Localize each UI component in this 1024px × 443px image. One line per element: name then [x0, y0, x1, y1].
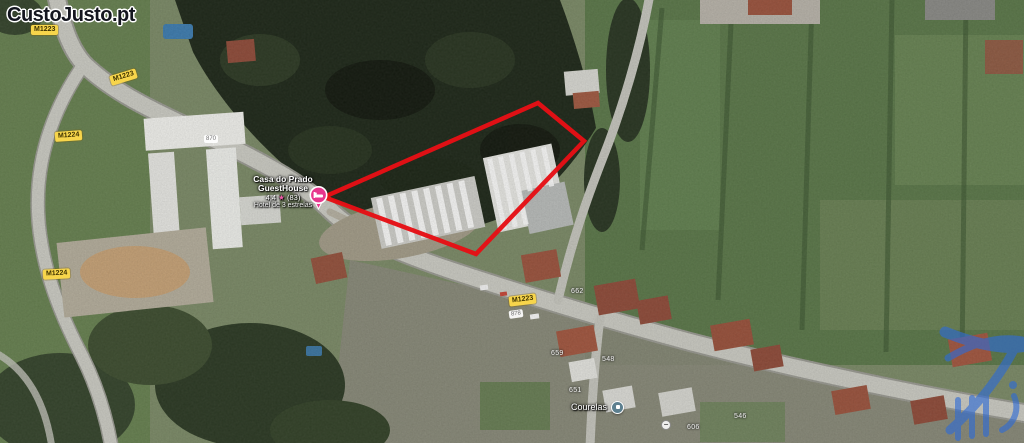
house-number: 548	[602, 356, 615, 363]
locality-pin-icon[interactable]	[611, 401, 624, 414]
photo-grain-light	[0, 0, 1024, 443]
house-number: 606	[687, 424, 700, 431]
custojusto-logo-watermark: CustoJusto.pt	[7, 4, 135, 27]
satellite-imagery	[0, 0, 1024, 443]
hotel-pin-icon[interactable]	[308, 185, 329, 212]
star-icon: ★	[278, 193, 285, 202]
road-restriction-icon: −	[661, 420, 671, 430]
rating-value: 4,4	[266, 193, 276, 202]
locality-label-courelas: Courelas	[571, 402, 607, 412]
house-number: 546	[734, 413, 747, 420]
road-badge-m1224-lower: M1224	[43, 268, 71, 279]
road-badge-m1224-upper: M1224	[55, 130, 83, 142]
house-number: 659	[551, 350, 564, 357]
house-number-shield-870: 870	[204, 135, 218, 143]
satellite-map-image[interactable]: CustoJusto.pt M1223 M1223 M1224 M1224 M1…	[0, 0, 1024, 443]
house-number: 651	[569, 387, 582, 394]
review-count: (83)	[287, 193, 300, 202]
house-number: 662	[571, 288, 584, 295]
